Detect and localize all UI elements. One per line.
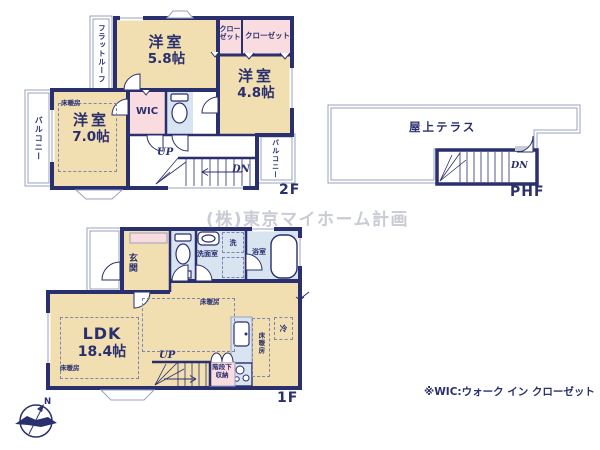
- wic-label: WIC: [128, 106, 166, 118]
- sink-icon: [198, 232, 219, 245]
- bathroom-label: 浴室: [252, 248, 266, 256]
- watermark: (株)東京マイホーム計画: [206, 205, 409, 230]
- floor-heating-label-2f: 床暖房: [61, 100, 81, 108]
- stairs-up-label-2f: UP: [157, 147, 173, 159]
- bedroom-5-8-size: 5.8帖: [115, 52, 218, 68]
- bedroom-7-0-label: 洋室 7.0帖: [54, 112, 128, 146]
- bay-window-1f: [101, 390, 154, 400]
- ldk-name: LDK: [66, 325, 138, 344]
- bedroom-7-0-size: 7.0帖: [54, 130, 128, 146]
- utility-space: [222, 257, 244, 278]
- under-stairs-storage-label: 階段下 収納: [208, 364, 236, 379]
- flat-roof-label: フラットルーフ: [90, 18, 112, 90]
- ldk-size: 18.4帖: [66, 344, 138, 361]
- bedroom-5-8-label: 洋室 5.8帖: [115, 34, 218, 68]
- floor-heating-zone-1f-center: [142, 298, 235, 352]
- bedroom-4-8-size: 4.8帖: [222, 86, 290, 102]
- roof-terrace-label: 屋上テラス: [409, 121, 476, 135]
- compass-north-label: N: [44, 397, 51, 407]
- stairs-down-label-phf: DN: [511, 160, 528, 171]
- floor-label-2f: 2F: [279, 182, 300, 199]
- floor-heating-label-1f-kitchen: 床暖房: [254, 325, 266, 361]
- closet-wide-label: クローゼット: [243, 32, 292, 41]
- floor-heating-label-1f-left: 床暖房: [60, 365, 80, 373]
- compass-icon: [15, 404, 57, 437]
- bedroom-4-8-name: 洋室: [222, 68, 290, 86]
- closet-small-label: クローゼット: [219, 25, 241, 42]
- washroom-label: 洗面室: [197, 250, 218, 258]
- plan-phf: [328, 105, 580, 184]
- storage-line2: 収納: [208, 372, 236, 380]
- porch-area: [87, 228, 122, 292]
- bedroom-4-8-label: 洋室 4.8帖: [222, 68, 290, 102]
- ldk-label: LDK 18.4帖: [66, 325, 138, 360]
- floor-heating-label-1f-center: 床暖房: [200, 299, 220, 307]
- floor-label-1f: 1F: [277, 390, 298, 407]
- entrance-label: 玄関: [125, 250, 138, 276]
- bedroom-5-8-name: 洋室: [115, 34, 218, 52]
- floor-label-phf: PHF: [510, 184, 545, 201]
- refrigerator-space: 冷: [274, 317, 293, 340]
- bedroom-7-0-name: 洋室: [54, 112, 128, 130]
- shoe-cabinet: [130, 233, 167, 243]
- floorplan-canvas: 冷 洗 フラットルーフ バルコニー 洋室 5.8帖 クローゼット クローゼット …: [0, 0, 600, 450]
- toilet-icon-2f: [171, 94, 188, 123]
- stairs-up-label-1f: UP: [159, 350, 175, 362]
- bathtub-icon: [271, 235, 297, 278]
- wic-footnote: ※WIC:ウォーク イン クローゼット: [424, 386, 595, 398]
- balcony-right-label: バルコニー: [268, 137, 283, 181]
- balcony-left-label: バルコニー: [25, 94, 52, 182]
- stairs-down-label-2f: DN: [232, 164, 250, 176]
- washer-space: 洗: [222, 232, 244, 253]
